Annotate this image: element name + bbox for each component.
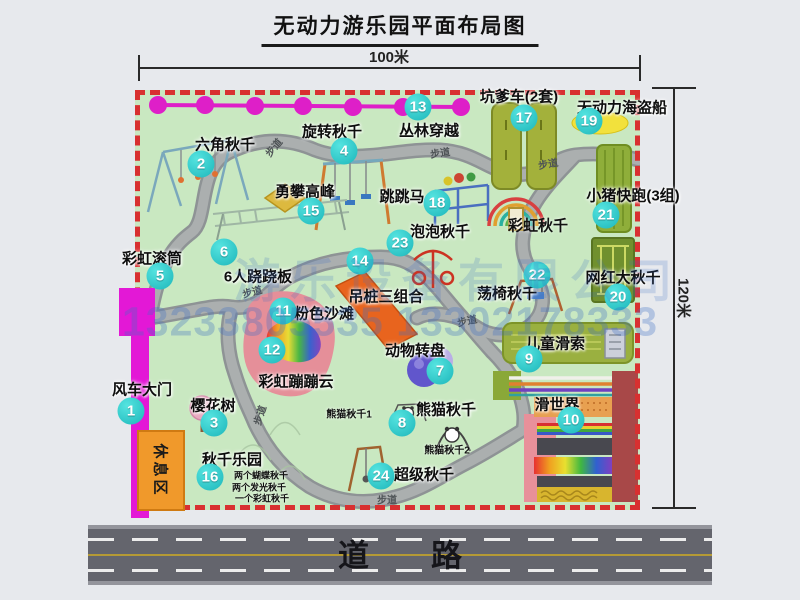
attraction-badge-10: 10 (558, 407, 585, 434)
top-dimension-tick-left (138, 55, 140, 81)
attraction-badge-7: 7 (427, 358, 454, 385)
attraction-label-24: 超级秋千 (394, 464, 454, 485)
attraction-badge-22: 22 (524, 262, 551, 289)
playground-layout-map: 无动力游乐园平面布局图 100米 120米 (0, 0, 800, 600)
attraction-badge-21: 21 (593, 202, 620, 229)
attraction-badge-9: 9 (516, 346, 543, 373)
attraction-label-12: 彩虹蹦蹦云 (258, 371, 333, 392)
attraction-label-18: 跳跳马 (379, 186, 424, 207)
right-dimension-tick-top (652, 87, 696, 89)
rest-area-label: 休息区 (151, 443, 172, 497)
road: 道路 (88, 525, 712, 585)
attraction-label-17: 坑爹车(2套) (480, 86, 558, 107)
attraction-badge-3: 3 (201, 410, 228, 437)
attraction-badge-5: 5 (147, 263, 174, 290)
attraction-label-13: 丛林穿越 (399, 120, 459, 141)
attraction-badge-24: 24 (368, 463, 395, 490)
attraction-badge-12: 12 (259, 337, 286, 364)
attraction-badge-23: 23 (387, 230, 414, 257)
attraction-badge-16: 16 (197, 464, 224, 491)
attraction-badge-8: 8 (389, 410, 416, 437)
top-dimension-line (138, 67, 641, 69)
attraction-label-23: 泡泡秋千 (410, 221, 470, 242)
attraction-label-1: 风车大门 (112, 379, 172, 400)
attraction-label-14: 吊桩三组合 (348, 286, 423, 307)
top-dimension-tick-right (639, 55, 641, 81)
height-dimension-label: 120米 (674, 278, 695, 318)
attraction-badge-2: 2 (188, 151, 215, 178)
attraction-badge-20: 20 (605, 284, 632, 311)
road-label: 道路 (88, 531, 712, 576)
page-title: 无动力游乐园平面布局图 (262, 10, 539, 47)
windmill-gate-top-graphic (119, 288, 155, 336)
extra-label-1: 熊猫秋千1 (326, 406, 372, 421)
extra-label-5: 一个彩虹秋千 (235, 492, 289, 505)
attraction-badge-14: 14 (347, 248, 374, 275)
attraction-badge-4: 4 (331, 138, 358, 165)
attraction-label-8: 熊猫秋千 (416, 399, 476, 420)
right-dimension-tick-bottom (652, 507, 696, 509)
attraction-label-11: 粉色沙滩 (294, 303, 354, 324)
attraction-badge-13: 13 (405, 94, 432, 121)
width-dimension-label: 100米 (365, 46, 413, 67)
attraction-badge-19: 19 (576, 108, 603, 135)
attraction-badge-18: 18 (424, 190, 451, 217)
attraction-badge-15: 15 (298, 198, 325, 225)
extra-label-0: 彩虹秋千 (508, 215, 568, 236)
attraction-badge-11: 11 (270, 298, 297, 325)
attraction-label-4: 旋转秋千 (302, 121, 362, 142)
attraction-badge-1: 1 (118, 398, 145, 425)
footpath-label-6: 步道 (377, 492, 397, 507)
footpath-label-1: 步道 (429, 143, 451, 161)
rest-area: 休息区 (137, 430, 185, 511)
attraction-badge-6: 6 (211, 239, 238, 266)
attraction-badge-17: 17 (511, 105, 538, 132)
extra-label-2: 熊猫秋千2 (424, 442, 470, 457)
